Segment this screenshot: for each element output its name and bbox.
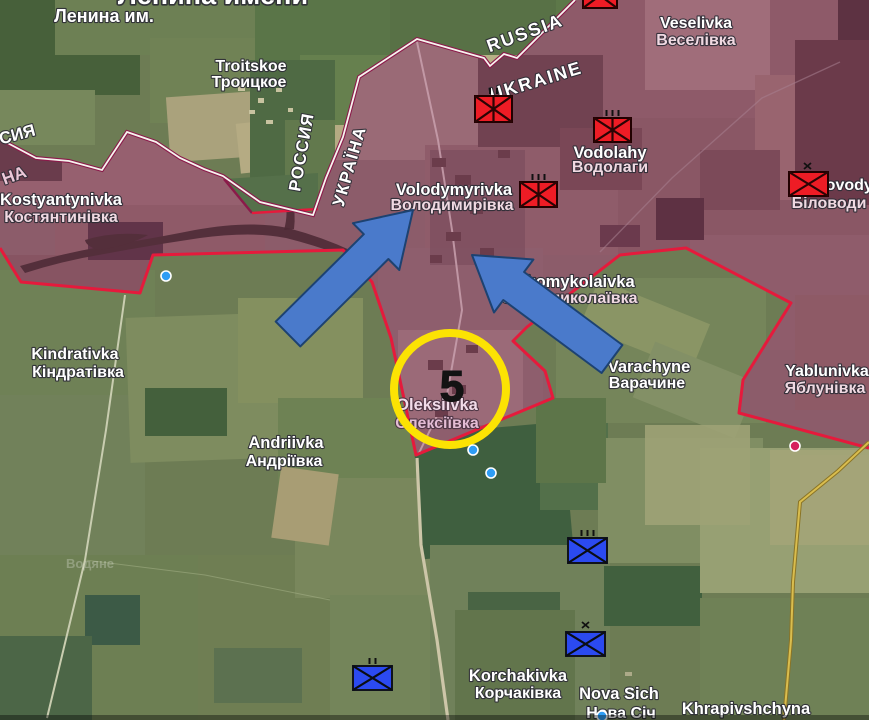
- svg-text:Yablunivka: Yablunivka: [785, 363, 869, 380]
- svg-text:Троицкое: Троицкое: [212, 74, 287, 91]
- svg-text:Біловоди: Біловоди: [792, 195, 867, 212]
- svg-text:Яблунівка: Яблунівка: [785, 380, 866, 397]
- svg-text:Веселівка: Веселівка: [656, 32, 735, 49]
- svg-text:Kindrativka: Kindrativka: [31, 346, 118, 363]
- svg-text:Андріївка: Андріївка: [246, 453, 323, 470]
- svg-text:5: 5: [440, 362, 464, 411]
- svg-text:Ленина им.: Ленина им.: [54, 6, 154, 26]
- svg-text:Водяне: Водяне: [66, 556, 114, 571]
- svg-text:Veselivka: Veselivka: [660, 15, 732, 32]
- svg-text:Водолаги: Водолаги: [572, 159, 648, 176]
- svg-text:Варачине: Варачине: [609, 375, 686, 392]
- svg-text:Nova Sich: Nova Sich: [579, 685, 659, 703]
- svg-text:Oleksiivka: Oleksiivka: [396, 396, 478, 414]
- svg-text:Корчаківка: Корчаківка: [475, 685, 561, 702]
- svg-text:Andriivka: Andriivka: [248, 434, 324, 452]
- svg-text:Korchakivka: Korchakivka: [469, 667, 568, 685]
- svg-text:Костянтинівка: Костянтинівка: [4, 209, 118, 226]
- svg-text:Troitskoe: Troitskoe: [215, 58, 286, 75]
- svg-text:Кіндратівка: Кіндратівка: [32, 364, 124, 381]
- svg-text:Varachyne: Varachyne: [608, 358, 691, 376]
- svg-text:Kostyantynivka: Kostyantynivka: [0, 191, 123, 209]
